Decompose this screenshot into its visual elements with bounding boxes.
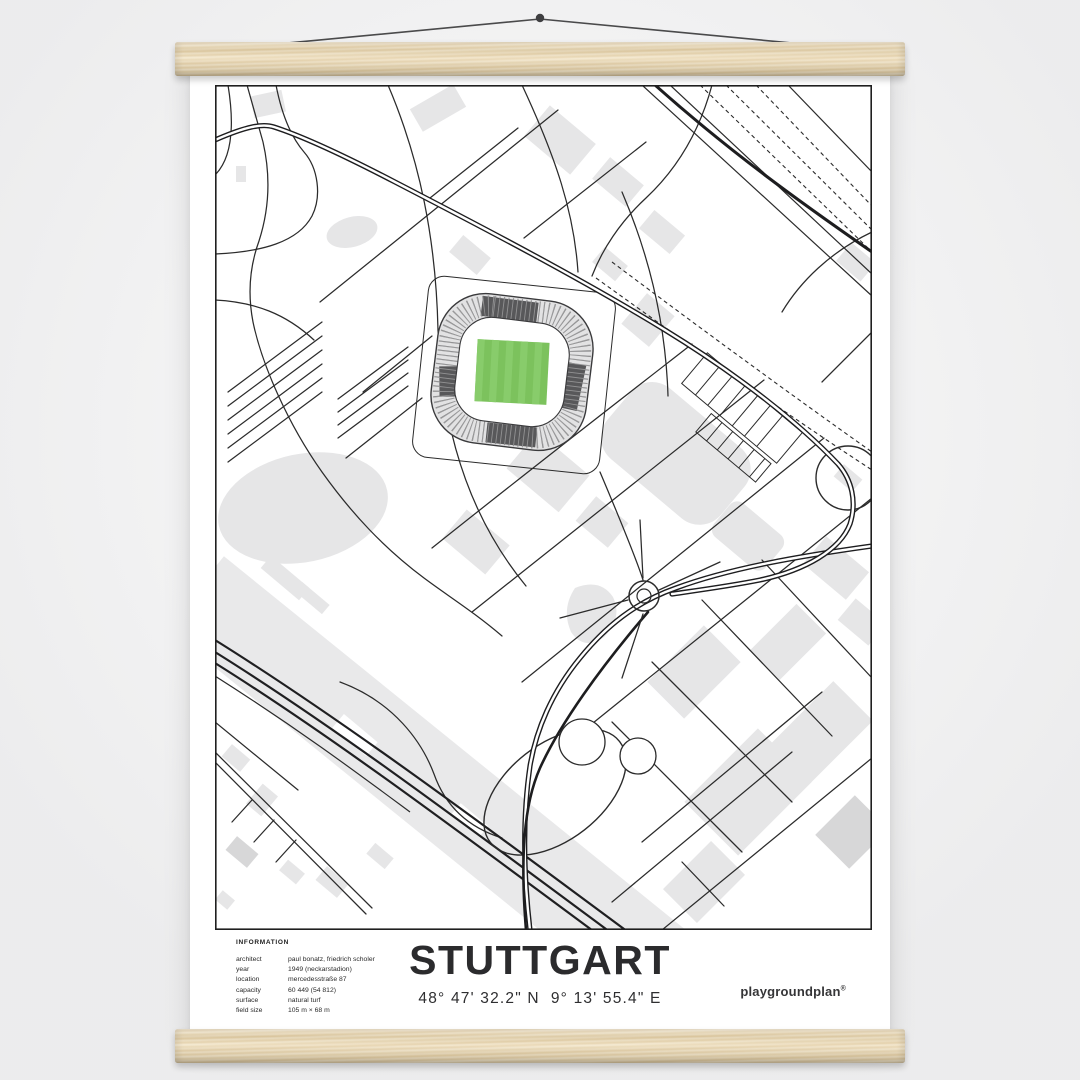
poster-hanger-bottom-bar xyxy=(175,1029,905,1063)
pitch xyxy=(474,339,549,405)
brand-name: playgroundplan xyxy=(740,984,840,999)
stadium xyxy=(425,288,598,456)
string-nail xyxy=(536,14,544,22)
scene: INFORMATION architect paul bonatz, fried… xyxy=(0,0,1080,1080)
tank-circle xyxy=(620,738,656,774)
brand-trademark: ® xyxy=(841,986,846,993)
brand-logo: playgroundplan® xyxy=(740,984,846,999)
poster: INFORMATION architect paul bonatz, fried… xyxy=(190,55,890,1040)
poster-hanger-top-bar xyxy=(175,42,905,76)
tank-circle xyxy=(559,719,605,765)
stadium-map xyxy=(215,85,872,930)
stadium-map-graphic xyxy=(215,85,872,930)
poster-title: STUTTGART xyxy=(190,938,890,983)
